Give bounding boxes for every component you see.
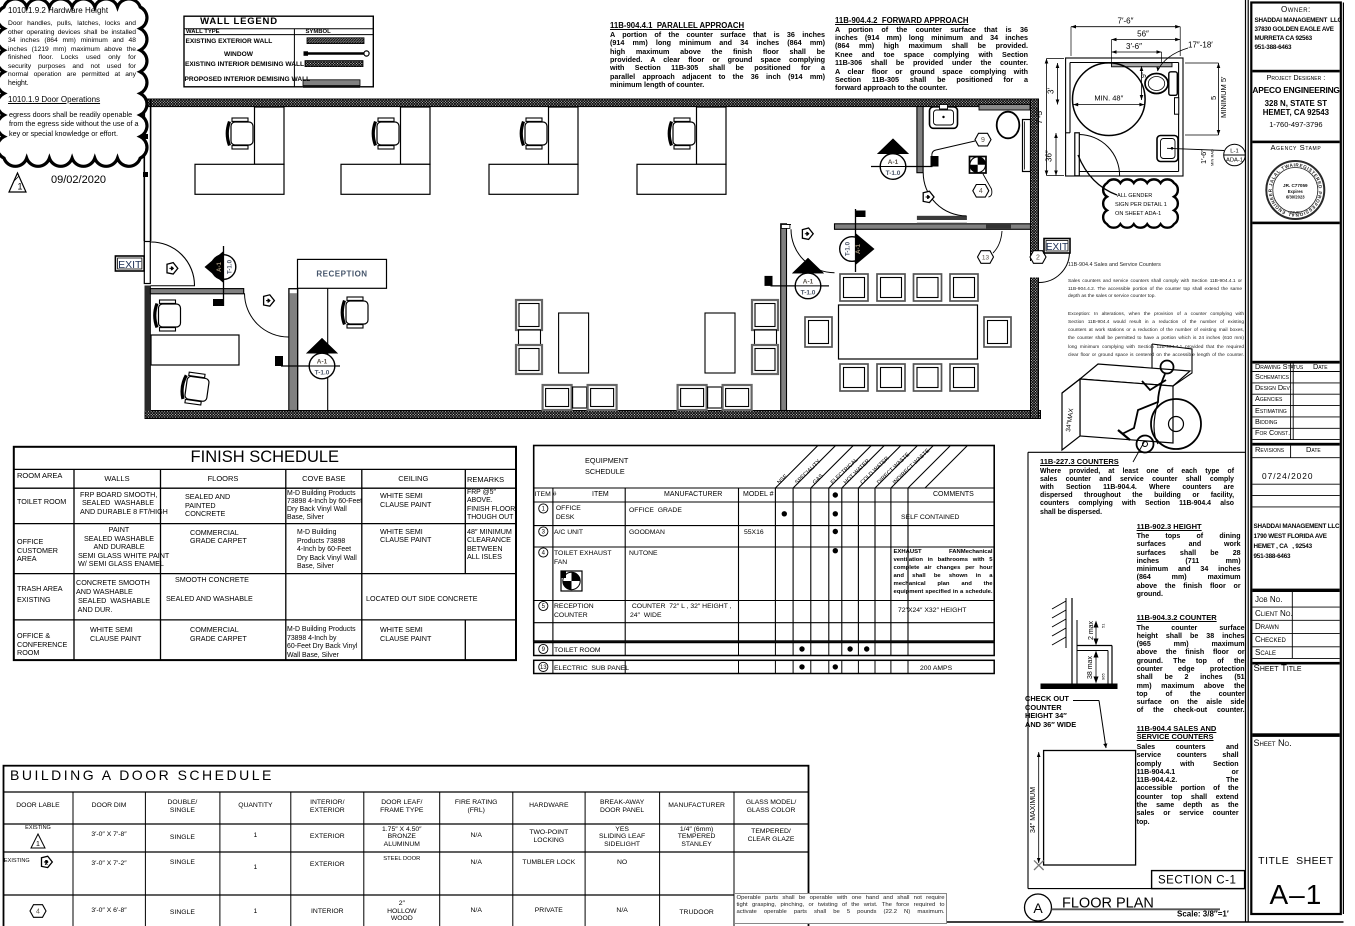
svg-text:2: 2 [45, 860, 49, 867]
svg-text:4: 4 [36, 908, 40, 915]
svg-text:1: 1 [36, 841, 40, 848]
